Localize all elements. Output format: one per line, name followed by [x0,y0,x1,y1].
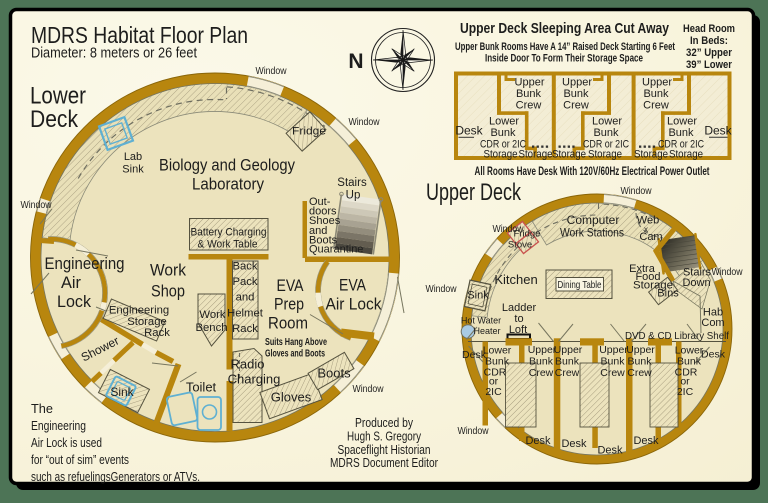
svg-text:x: x [644,225,648,234]
svg-text:such as refuelingsGenerators o: such as refuelingsGenerators or ATVs. [31,470,200,484]
svg-text:& Work Table: & Work Table [198,239,258,251]
svg-text:Work Stations: Work Stations [560,226,624,240]
svg-text:Storage: Storage [484,149,518,161]
svg-text:Gloves: Gloves [271,390,312,405]
svg-text:Down: Down [682,277,710,289]
svg-text:Work: Work [199,309,226,321]
svg-text:Lock: Lock [57,293,92,311]
svg-text:Air Lock is used: Air Lock is used [31,436,102,450]
svg-text:Desk: Desk [525,435,551,447]
svg-text:Heater: Heater [473,326,500,336]
svg-text:Window: Window [458,425,489,437]
svg-text:Lower: Lower [592,116,622,128]
svg-text:Upper: Upper [562,77,592,89]
svg-text:Dining Table: Dining Table [558,279,602,291]
svg-text:2IC: 2IC [485,386,502,398]
svg-text:Storage: Storage [669,149,703,161]
svg-text:Crew: Crew [563,100,589,112]
svg-text:Storage: Storage [519,149,553,161]
svg-text:Window: Window [349,116,380,128]
svg-text:Desk: Desk [701,349,726,361]
svg-text:Gloves and Boots: Gloves and Boots [265,349,325,360]
svg-text:Bunk: Bunk [516,88,542,100]
svg-text:Boots: Boots [317,366,351,381]
svg-text:Crew: Crew [627,367,652,379]
svg-text:Radio: Radio [231,357,265,372]
svg-text:Bunk: Bunk [529,356,554,368]
svg-text:Laboratory: Laboratory [192,175,264,194]
svg-text:All Rooms Have Desk With 120V/: All Rooms Have Desk With 120V/60Hz Elect… [475,164,710,178]
svg-text:Cam: Cam [639,231,662,243]
svg-text:Upper Deck Sleeping Area Cut A: Upper Deck Sleeping Area Cut Away [460,20,670,37]
svg-text:Pack: Pack [232,276,257,288]
svg-text:Upper Bunk Rooms Have A 14” Ra: Upper Bunk Rooms Have A 14” Raised Deck … [455,41,675,53]
svg-text:Upper Deck: Upper Deck [426,179,522,206]
svg-text:Work: Work [150,262,187,280]
svg-text:In Beds:: In Beds: [690,35,728,47]
svg-text:Engineering: Engineering [45,255,125,273]
svg-text:Crew: Crew [643,100,669,112]
svg-text:Desk: Desk [455,124,483,138]
svg-text:Bunk: Bunk [593,127,619,139]
svg-text:Suits Hang Above: Suits Hang Above [265,337,327,348]
svg-text:Storage: Storage [588,149,622,161]
svg-text:Sink: Sink [467,290,489,302]
svg-text:Desk: Desk [561,438,587,450]
svg-text:Upper: Upper [599,344,628,356]
svg-text:Diameter: 8 meters or 26 feet: Diameter: 8 meters or 26 feet [31,46,197,62]
svg-text:Crew: Crew [600,367,625,379]
svg-text:Storage: Storage [634,149,668,161]
svg-text:Lower: Lower [489,116,519,128]
svg-text:Prep: Prep [274,296,304,314]
svg-text:Toilet: Toilet [186,380,217,395]
svg-text:Lower: Lower [667,116,697,128]
svg-text:Upper: Upper [626,344,655,356]
svg-text:Com: Com [701,317,724,329]
svg-text:Bench: Bench [195,322,227,334]
svg-text:Upper: Upper [528,344,557,356]
svg-text:EVA: EVA [277,277,304,295]
svg-text:Deck: Deck [30,106,79,133]
svg-text:Window: Window [621,185,652,197]
svg-text:Crew: Crew [529,367,554,379]
svg-text:2IC: 2IC [677,386,694,398]
svg-text:Bunk: Bunk [555,356,580,368]
svg-text:Loft: Loft [509,324,527,336]
svg-text:The: The [31,402,53,416]
svg-text:Inside Door To Form Their Stor: Inside Door To Form Their Storage Space [485,53,643,65]
svg-text:Window: Window [426,283,457,295]
svg-text:Biology and Geology: Biology and Geology [159,156,295,175]
svg-text:Window: Window [712,266,743,278]
svg-text:Rack: Rack [144,327,170,339]
svg-text:Air Lock: Air Lock [326,296,383,314]
svg-text:Up: Up [346,190,361,202]
svg-text:N: N [348,50,363,73]
svg-text:Crew: Crew [516,100,542,112]
svg-text:Window: Window [493,223,524,235]
svg-text:Kitchen: Kitchen [494,272,537,287]
svg-text:for “out of sim” events: for “out of sim” events [31,453,129,467]
svg-text:Bunk: Bunk [628,356,653,368]
svg-text:Rack: Rack [232,323,258,335]
svg-text:MDRS Document Editor: MDRS Document Editor [330,455,439,470]
svg-text:Lab: Lab [124,151,142,163]
svg-text:Air: Air [61,274,81,292]
svg-text:Bunk: Bunk [643,88,669,100]
svg-text:32” Upper: 32” Upper [686,47,733,59]
svg-text:Bunk: Bunk [563,88,589,100]
svg-text:Hot Water: Hot Water [461,316,501,326]
svg-text:Upper: Upper [642,77,672,89]
svg-text:Battery Charging: Battery Charging [191,227,267,239]
svg-text:Bunk: Bunk [601,356,626,368]
svg-text:39” Lower: 39” Lower [686,59,733,71]
svg-text:Charging: Charging [228,372,281,387]
svg-text:Crew: Crew [555,367,580,379]
svg-text:Desk: Desk [704,124,732,138]
svg-text:Web: Web [637,215,659,227]
svg-text:Quarantine: Quarantine [309,244,363,256]
svg-text:Sink: Sink [110,385,134,399]
svg-text:and: and [236,292,255,304]
svg-text:Shop: Shop [151,283,185,301]
svg-text:Desk: Desk [633,435,659,447]
svg-text:Window: Window [21,199,52,211]
svg-text:Bunk: Bunk [668,127,694,139]
svg-text:Window: Window [256,65,287,77]
svg-text:Fridge: Fridge [292,126,326,138]
svg-text:Stove: Stove [508,240,532,251]
svg-text:EVA: EVA [339,277,366,295]
svg-text:MDRS Habitat Floor Plan: MDRS Habitat Floor Plan [31,22,248,48]
svg-text:Upper: Upper [515,77,545,89]
svg-text:Sink: Sink [122,164,144,176]
svg-text:Engineering: Engineering [109,305,169,317]
svg-text:Room: Room [268,315,308,333]
svg-text:Bins: Bins [657,288,679,300]
svg-text:Back: Back [232,261,257,273]
svg-text:Desk: Desk [597,445,623,457]
svg-text:Helmet: Helmet [227,307,264,319]
svg-text:Storage: Storage [552,149,586,161]
svg-text:Window: Window [353,383,384,395]
svg-text:Upper: Upper [554,344,583,356]
svg-text:Head Room: Head Room [683,23,735,35]
svg-text:Engineering: Engineering [31,419,86,433]
svg-text:Stairs: Stairs [337,177,367,189]
svg-text:DVD & CD Library Shelf: DVD & CD Library Shelf [625,330,729,342]
svg-text:Bunk: Bunk [490,127,516,139]
